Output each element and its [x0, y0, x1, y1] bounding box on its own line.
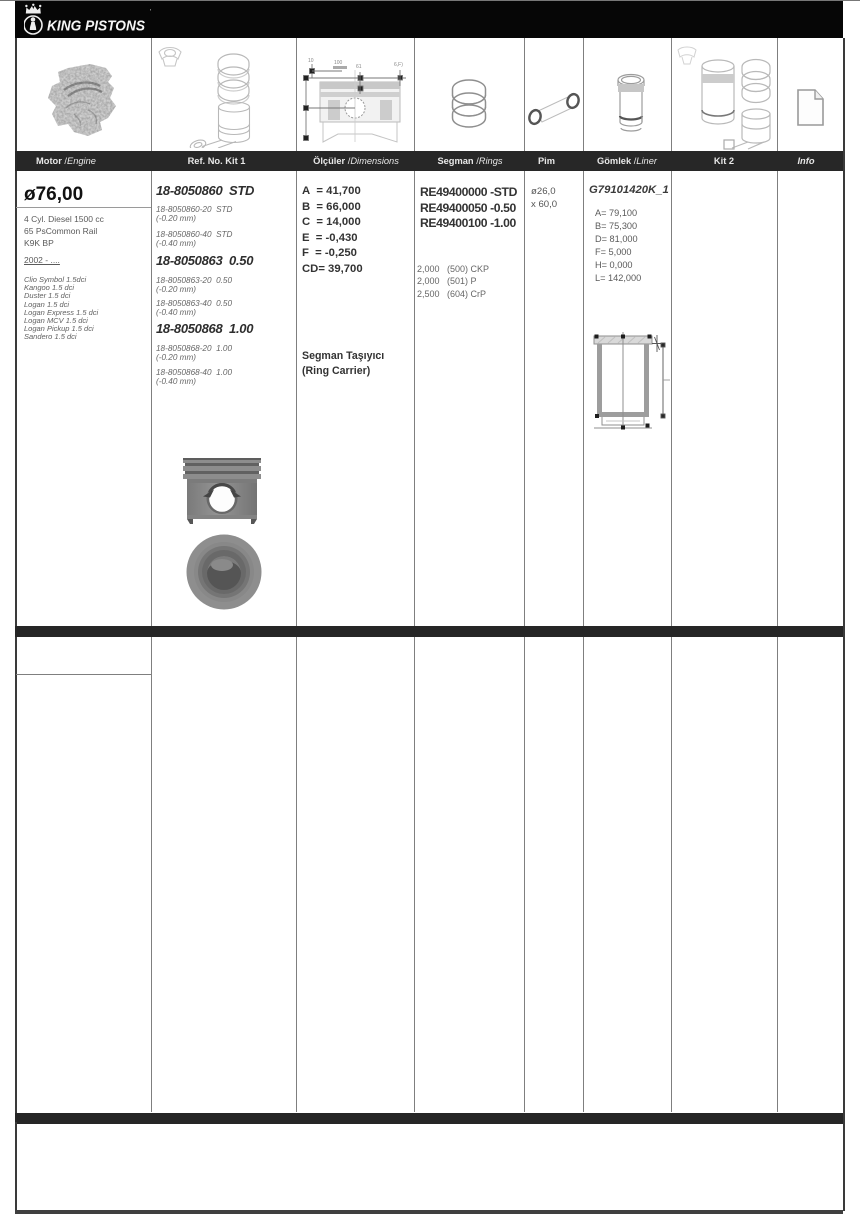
- svg-text:100: 100: [334, 60, 343, 66]
- svg-text:': ': [150, 9, 151, 16]
- svg-text:61: 61: [356, 64, 362, 70]
- svg-text:KING PISTONS: KING PISTONS: [47, 18, 145, 35]
- svg-text:6,F): 6,F): [394, 62, 403, 68]
- svg-text:10: 10: [308, 58, 314, 64]
